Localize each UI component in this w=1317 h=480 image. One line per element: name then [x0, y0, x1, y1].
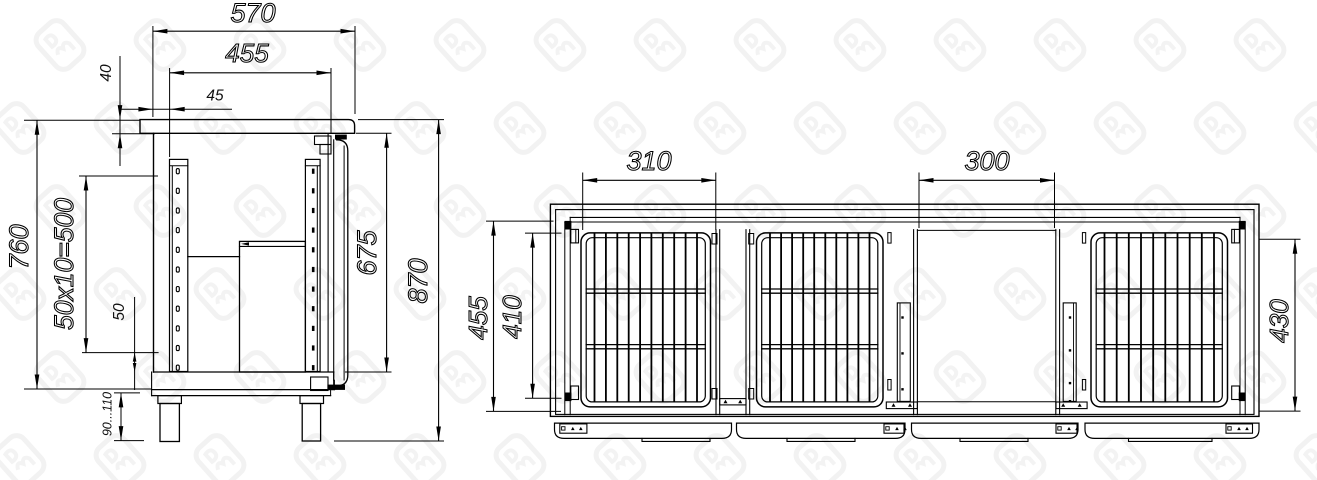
svg-text:45: 45 — [206, 88, 224, 105]
svg-text:675: 675 — [352, 229, 382, 275]
svg-text:870: 870 — [403, 258, 433, 303]
svg-text:50x10=500: 50x10=500 — [49, 198, 79, 330]
svg-text:50: 50 — [111, 303, 128, 321]
svg-text:90...110: 90...110 — [100, 392, 114, 436]
svg-text:430: 430 — [1264, 299, 1294, 343]
svg-text:310: 310 — [626, 146, 671, 176]
svg-text:40: 40 — [98, 64, 115, 82]
svg-text:570: 570 — [230, 0, 275, 28]
svg-text:760: 760 — [4, 224, 34, 269]
svg-text:455: 455 — [463, 296, 493, 340]
svg-text:455: 455 — [225, 38, 269, 68]
svg-text:300: 300 — [964, 146, 1009, 176]
svg-text:410: 410 — [497, 295, 527, 339]
